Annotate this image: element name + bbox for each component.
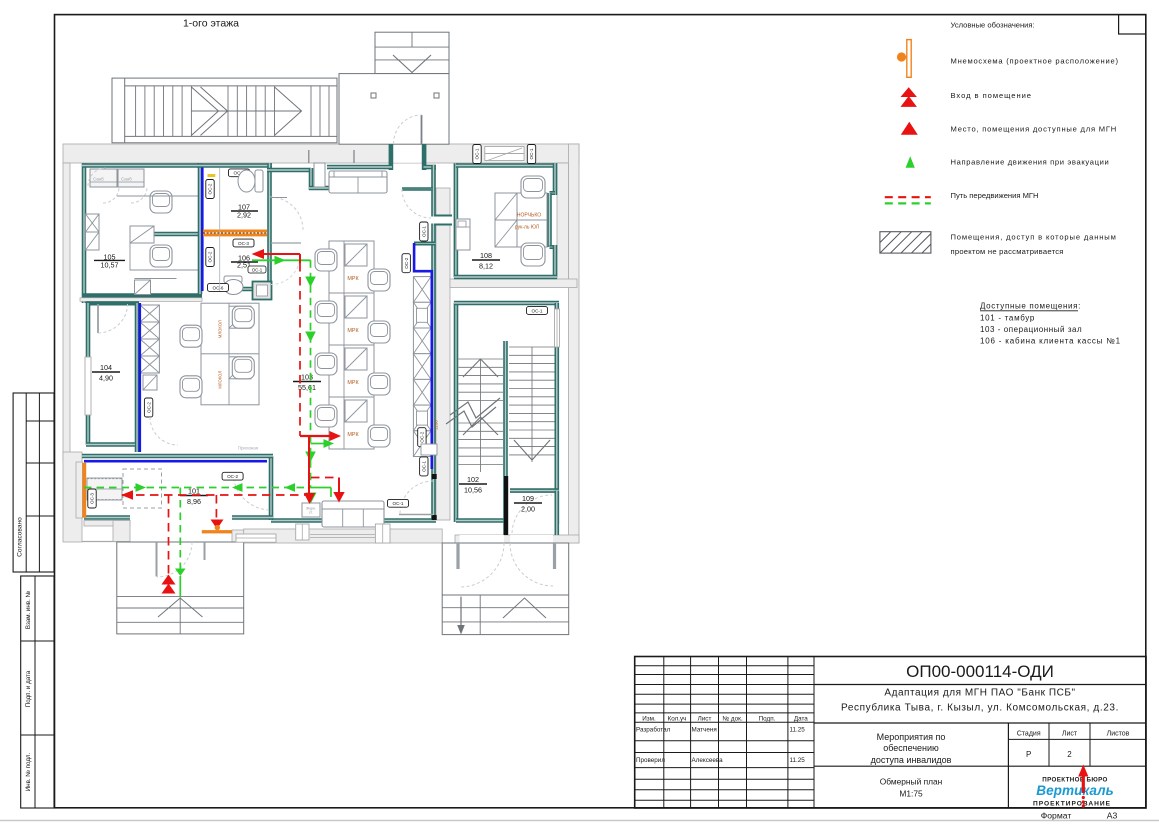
svg-text:Направление движения при эваку: Направление движения при эвакуации [951, 158, 1110, 167]
svg-text:Разработал: Разработал [636, 726, 671, 734]
svg-text:Алексеева: Алексеева [692, 757, 724, 764]
svg-text:8,12: 8,12 [479, 262, 493, 271]
svg-text:Инв. № подл.: Инв. № подл. [25, 752, 32, 791]
svg-text:10,57: 10,57 [101, 261, 119, 270]
svg-text:МРК: МРК [347, 432, 359, 438]
svg-text:8,96: 8,96 [187, 497, 201, 506]
svg-text:Условные обозначения:: Условные обозначения: [951, 21, 1035, 30]
svg-text:101 - тамбур: 101 - тамбур [980, 314, 1035, 323]
svg-text:103 - операционный зал: 103 - операционный зал [980, 325, 1082, 334]
svg-text:ОС-3: ОС-3 [90, 493, 95, 504]
svg-text:106 - кабина клиента кассы №1: 106 - кабина клиента кассы №1 [980, 337, 1121, 346]
svg-text:А3: А3 [1107, 811, 1118, 821]
svg-text:рук-ль ЮЛ: рук-ль ЮЛ [515, 225, 539, 231]
svg-text:проектом не рассматривается: проектом не рассматривается [951, 247, 1064, 256]
svg-text:108: 108 [480, 251, 492, 260]
svg-text:Согласовано: Согласовано [17, 517, 24, 557]
svg-text:Путь передвижения МГН: Путь передвижения МГН [951, 191, 1039, 200]
svg-text:ОС-1: ОС-1 [422, 460, 427, 471]
svg-text:Помещения, доступ в которые да: Помещения, доступ в которые данным [951, 233, 1117, 242]
svg-text:2,92: 2,92 [237, 211, 251, 220]
svg-text:ОС-2: ОС-2 [146, 402, 151, 413]
svg-text:ОС-1: ОС-1 [529, 148, 534, 159]
svg-text:МРК: МРК [347, 380, 359, 386]
svg-text:Лист: Лист [1062, 731, 1078, 738]
svg-text:Санб: Санб [93, 177, 104, 182]
svg-text:МРК: МРК [347, 276, 359, 282]
svg-text:Мнемосхема (проектное располож: Мнемосхема (проектное расположение) [951, 57, 1119, 66]
svg-text:ОС-6: ОС-6 [213, 285, 224, 290]
svg-text:ОС-1: ОС-1 [532, 308, 543, 313]
svg-text:МЛОКОЛ: МЛОКОЛ [218, 320, 223, 338]
svg-text:Проверил: Проверил [636, 757, 665, 764]
svg-text:ОС-1: ОС-1 [475, 148, 480, 159]
svg-text:МРК: МРК [347, 328, 359, 334]
svg-text:Лист: Лист [698, 715, 712, 722]
svg-text:Дата: Дата [794, 715, 808, 722]
svg-text:Санб: Санб [121, 177, 132, 182]
svg-text:Доступные помещения:: Доступные помещения: [980, 302, 1081, 311]
svg-text:Мероприятия по: Мероприятия по [877, 732, 946, 742]
svg-text:104: 104 [100, 363, 112, 372]
svg-text:Республика Тыва, г. Кызыл, ул.: Республика Тыва, г. Кызыл, ул. Комсомоль… [841, 702, 1119, 714]
svg-text:Вход в помещение: Вход в помещение [951, 91, 1032, 100]
svg-text:Матченя: Матченя [692, 727, 717, 734]
svg-text:Вертикаль: Вертикаль [1036, 783, 1113, 798]
svg-text:ст.: ст. [309, 511, 313, 515]
svg-text:2: 2 [1067, 750, 1072, 759]
svg-text:Р: Р [1026, 750, 1031, 759]
svg-text:11.25: 11.25 [790, 757, 806, 764]
svg-text:4,90: 4,90 [99, 374, 113, 383]
svg-text:10,56: 10,56 [464, 486, 482, 495]
svg-text:1130: 1130 [434, 420, 439, 430]
svg-text:102: 102 [467, 475, 479, 484]
svg-text:Подп. и дата: Подп. и дата [25, 670, 32, 707]
svg-text:Адаптация для МГН ПАО "Банк ПС: Адаптация для МГН ПАО "Банк ПСБ" [884, 688, 1075, 699]
svg-text:Прихожая: Прихожая [238, 446, 259, 451]
svg-text:Стадия: Стадия [1017, 731, 1041, 738]
svg-text:11.25: 11.25 [790, 727, 806, 734]
svg-text:ОП00-000114-ОДИ: ОП00-000114-ОДИ [906, 662, 1054, 681]
svg-text:ОС-2: ОС-2 [208, 251, 213, 262]
svg-text:Обмерный план: Обмерный план [880, 777, 943, 787]
svg-text:ОС-2: ОС-2 [404, 257, 409, 268]
svg-text:обеспечению: обеспечению [883, 743, 939, 753]
svg-text:Изм.: Изм. [642, 715, 656, 722]
svg-text:Место, помещения доступные для: Место, помещения доступные для МГН [951, 125, 1118, 134]
svg-text:ОС-2: ОС-2 [208, 183, 213, 194]
svg-text:109: 109 [522, 494, 534, 503]
svg-text:Формат: Формат [1041, 811, 1072, 821]
svg-text:НОРЧЬКО: НОРЧЬКО [517, 213, 541, 219]
svg-text:МЛОКОЛ: МЛОКОЛ [218, 371, 223, 389]
svg-text:1-ого этажа: 1-ого этажа [183, 18, 239, 30]
svg-text:ОС-1: ОС-1 [422, 226, 427, 237]
svg-text:2,00: 2,00 [521, 505, 535, 514]
svg-text:ОС-1: ОС-1 [252, 267, 263, 272]
svg-text:Подп.: Подп. [759, 715, 776, 722]
svg-text:Листов: Листов [1107, 731, 1130, 738]
svg-text:М1:75: М1:75 [899, 789, 923, 799]
svg-text:ОС-3: ОС-3 [238, 241, 249, 246]
svg-text:№ док.: № док. [722, 715, 742, 722]
svg-text:ОС-1: ОС-1 [393, 501, 404, 506]
svg-text:ОС-2: ОС-2 [227, 474, 238, 479]
svg-text:Кол.уч: Кол.уч [668, 715, 687, 722]
svg-text:ОС-2: ОС-2 [420, 431, 425, 442]
svg-text:доступа инвалидов: доступа инвалидов [871, 755, 952, 765]
svg-text:Взам. инв. №: Взам. инв. № [25, 590, 32, 629]
svg-text:ПРОЕКТИРОВАНИЕ: ПРОЕКТИРОВАНИЕ [1033, 801, 1111, 808]
